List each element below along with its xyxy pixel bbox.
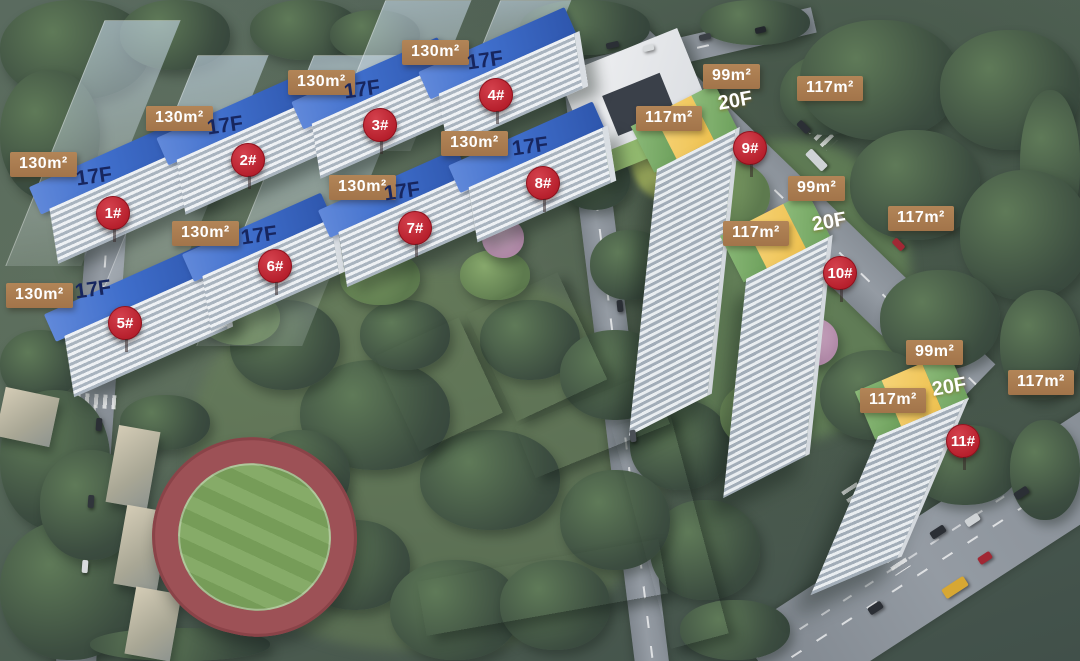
area-tag: 99m² xyxy=(788,176,845,201)
building-pin: 5# xyxy=(108,306,142,340)
area-tag: 130m² xyxy=(146,106,213,131)
area-tag: 117m² xyxy=(723,221,789,246)
area-tag: 130m² xyxy=(172,221,239,246)
floor-tag: 17F xyxy=(75,163,114,192)
building-pin: 11# xyxy=(946,424,980,458)
soccer-field xyxy=(164,449,346,626)
area-tag: 130m² xyxy=(6,283,73,308)
building-pin: 8# xyxy=(526,166,560,200)
building-pin: 2# xyxy=(231,143,265,177)
floor-tag: 17F xyxy=(240,222,279,251)
building-pin: 3# xyxy=(363,108,397,142)
area-tag: 99m² xyxy=(906,340,963,365)
area-tag: 117m² xyxy=(1008,370,1074,395)
floor-tag: 17F xyxy=(511,133,550,162)
building-pin: 1# xyxy=(96,196,130,230)
area-tag: 130m² xyxy=(10,152,77,177)
building-pin: 10# xyxy=(823,256,857,290)
area-tag: 99m² xyxy=(703,64,760,89)
floor-tag: 17F xyxy=(466,47,505,76)
building-pin: 7# xyxy=(398,211,432,245)
area-tag: 130m² xyxy=(402,40,469,65)
school-building xyxy=(0,387,60,447)
floor-tag: 20F xyxy=(716,87,754,116)
floor-tag: 17F xyxy=(343,76,382,105)
site-plan-rendering: 130m² 130m² 130m² 130m² 130m² 130m² 130m… xyxy=(0,0,1080,661)
building-pin: 6# xyxy=(258,249,292,283)
area-tag: 117m² xyxy=(797,76,863,101)
area-tag: 130m² xyxy=(441,131,508,156)
building-pin: 9# xyxy=(733,131,767,165)
school-building xyxy=(106,425,161,509)
floor-tag: 17F xyxy=(74,276,113,305)
area-tag: 117m² xyxy=(636,106,702,131)
floor-tag: 17F xyxy=(383,178,422,207)
floor-tag: 17F xyxy=(206,112,245,141)
area-tag: 117m² xyxy=(860,388,926,413)
area-tag: 117m² xyxy=(888,206,954,231)
building-pin: 4# xyxy=(479,78,513,112)
